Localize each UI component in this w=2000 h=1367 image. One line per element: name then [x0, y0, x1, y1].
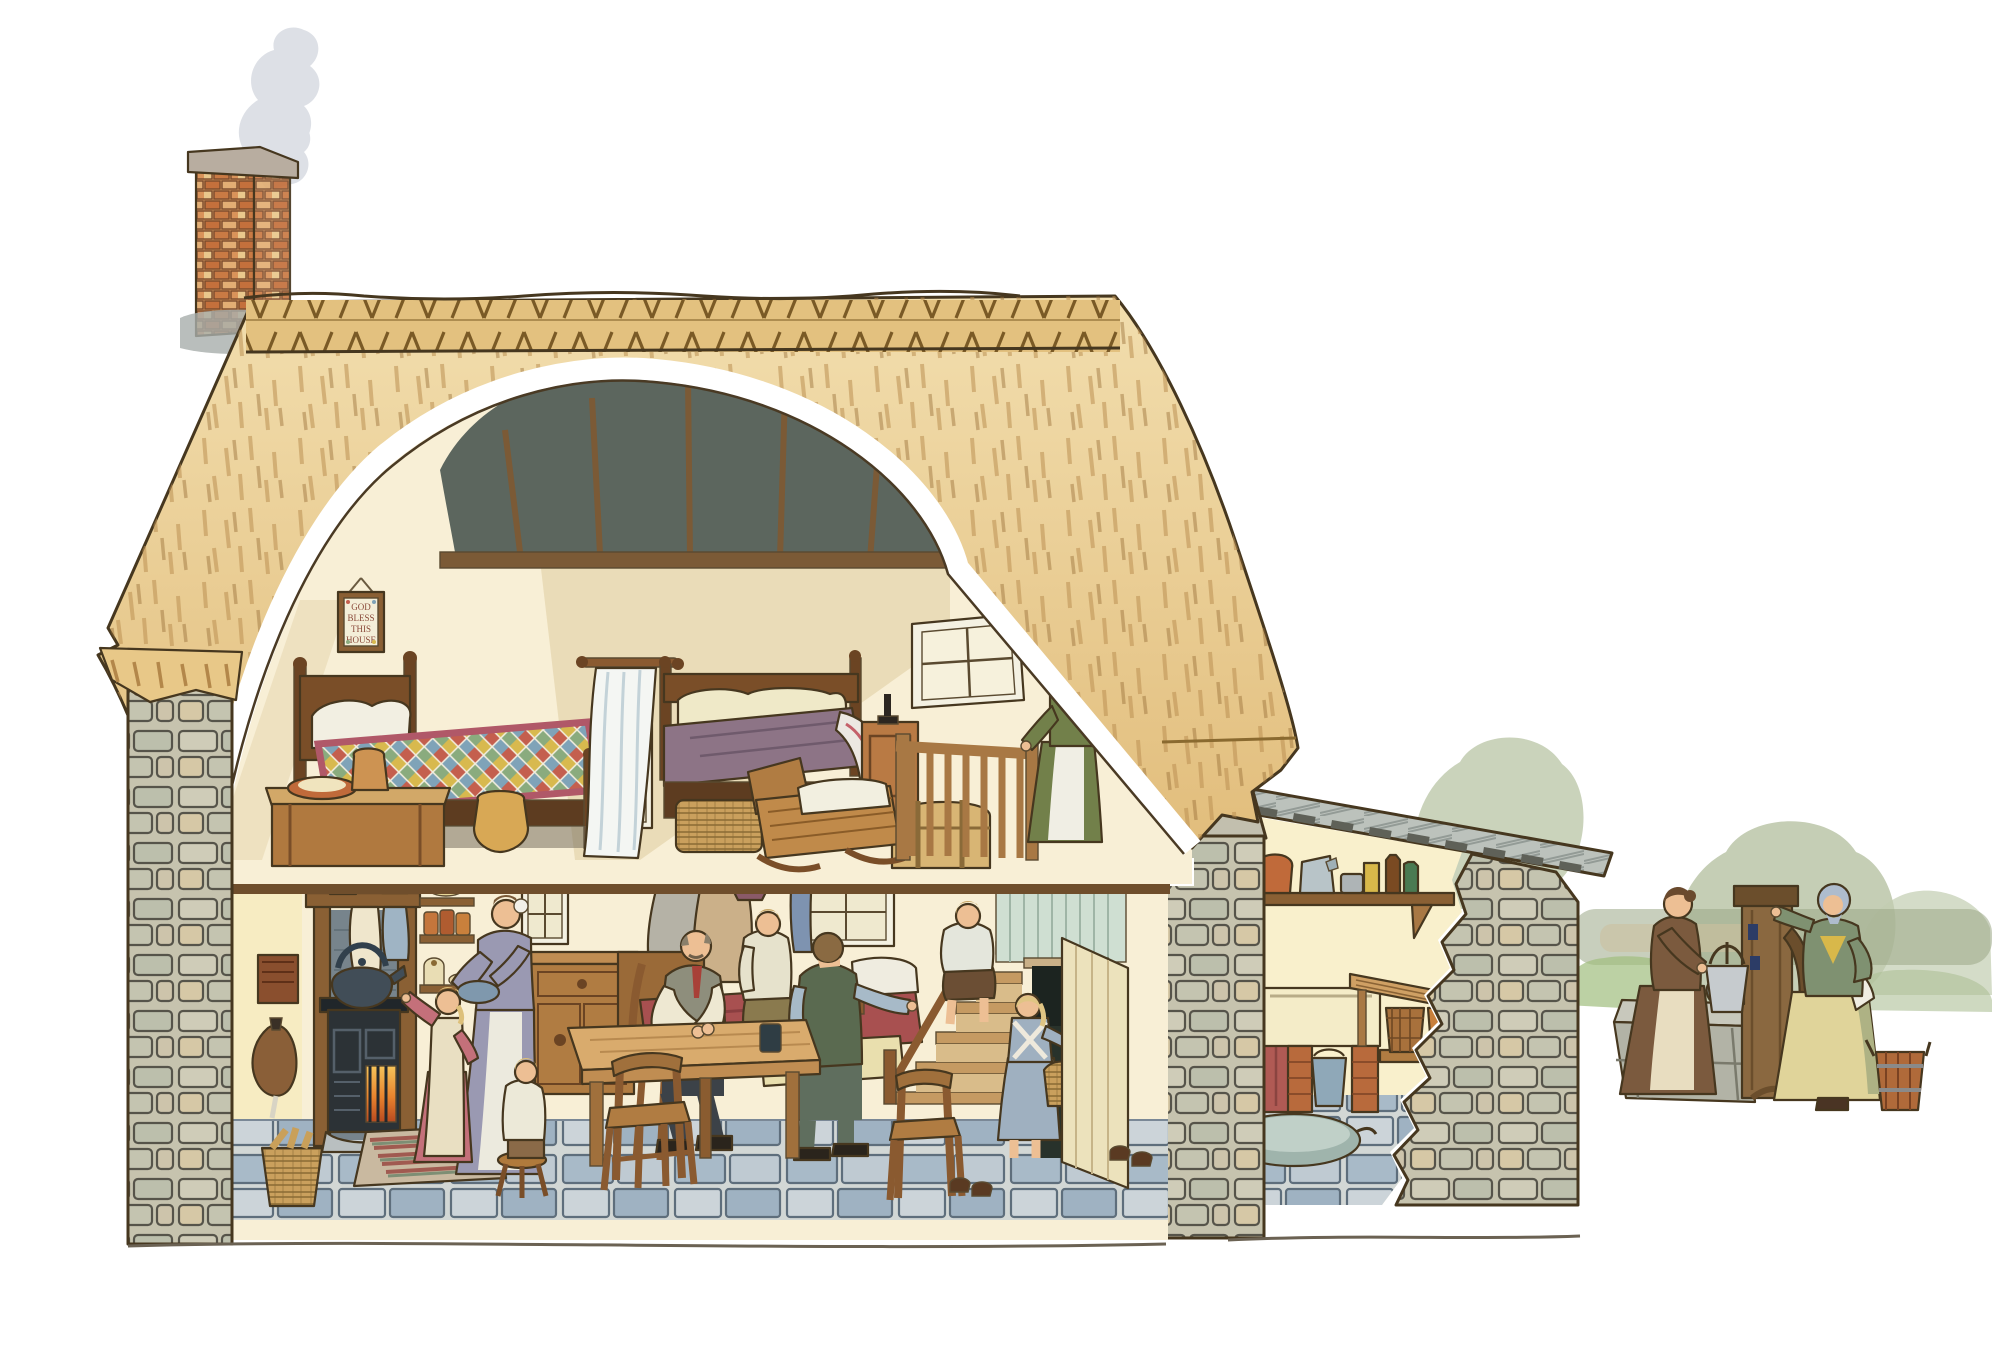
white-cap: [514, 899, 528, 913]
newel-post: [884, 1050, 896, 1104]
towel-blue: [383, 907, 409, 960]
metal-pail: [1706, 966, 1748, 1012]
cottage-cutaway-illustration: GOD BLESS THIS HOUSE: [0, 0, 2000, 1367]
glass-tumbler: [760, 1024, 781, 1052]
yellow-box: [1364, 863, 1379, 893]
sampler-line-1: GOD: [351, 602, 371, 612]
scullery: [1228, 785, 1612, 1212]
left-stone-wall: [100, 648, 242, 1244]
ground-line: [128, 1243, 1166, 1246]
ground-floor: [232, 855, 1168, 1245]
shoe: [1816, 1098, 1848, 1110]
ceiling-beam: [228, 884, 1170, 894]
brick-pier: [1352, 1046, 1378, 1112]
mixing-bowl: [457, 981, 499, 1003]
illustration-canvas: GOD BLESS THIS HOUSE: [0, 0, 2000, 1367]
candlestick: [878, 716, 898, 724]
enamel-pail: [1312, 1058, 1346, 1106]
brick-pier: [1288, 1046, 1312, 1112]
sampler-line-4: HOUSE: [346, 635, 377, 645]
jug-on-chest: [352, 749, 388, 791]
ground-line-scullery: [1228, 1236, 1580, 1240]
foreground-white: [0, 1248, 2000, 1367]
brown-bottle: [1386, 855, 1400, 893]
newel-post: [896, 734, 910, 860]
purlin-beam: [440, 552, 968, 568]
wicker-basket: [676, 800, 762, 852]
floor-jug: [474, 791, 528, 852]
sampler-line-2: BLESS: [347, 613, 374, 623]
mantel-shelf: [306, 893, 420, 907]
sampler-line-3: THIS: [351, 624, 371, 634]
pump-cap: [1734, 886, 1798, 906]
green-bottle: [1404, 862, 1418, 893]
tin: [1341, 874, 1363, 893]
